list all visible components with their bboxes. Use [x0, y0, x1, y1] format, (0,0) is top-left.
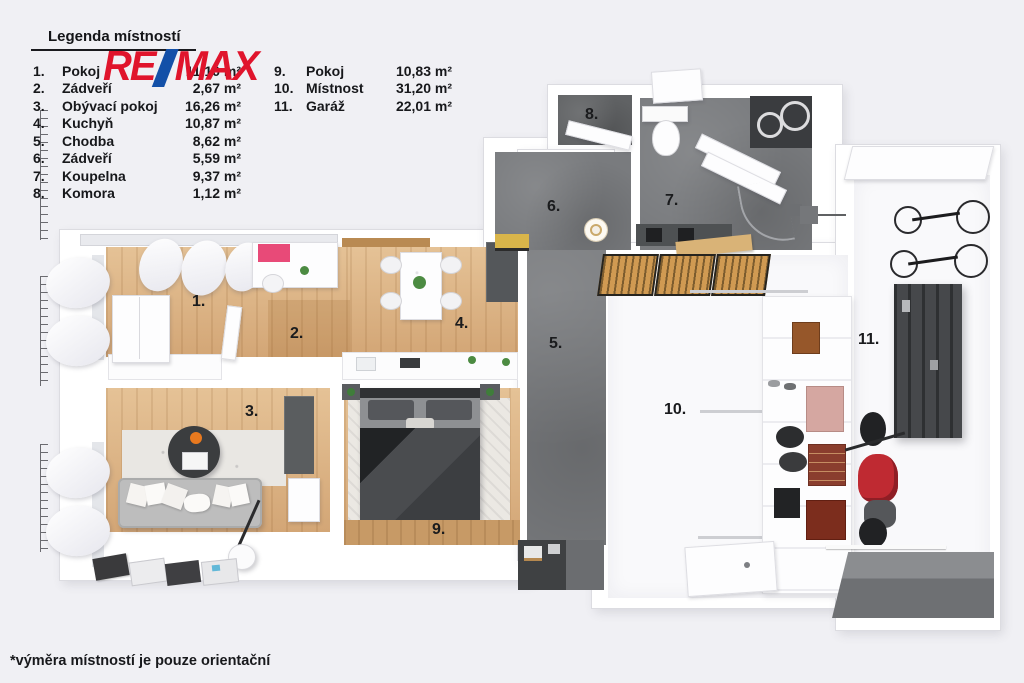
- vent-box: [800, 206, 818, 224]
- wardrobe-divider: [139, 297, 140, 359]
- legend-row: 3.Obývací pokoj16,26 m²: [33, 97, 241, 115]
- bed-pillow: [368, 400, 414, 420]
- tv-cabinet: [284, 396, 314, 474]
- step-books: [524, 546, 542, 558]
- room-label-10: 10.: [664, 401, 686, 419]
- bed: [360, 388, 480, 520]
- garage-ramp: [832, 552, 994, 618]
- vent-line: [818, 214, 846, 216]
- desk-chair: [262, 274, 284, 293]
- legend-row: 4.Kuchyň10,87 m²: [33, 115, 241, 133]
- magazine: [165, 560, 201, 586]
- wardrobe: [112, 295, 170, 363]
- bicycle: [894, 198, 990, 234]
- helmet: [776, 426, 804, 448]
- magazine-accent: [212, 565, 221, 572]
- room-label-8: 8.: [585, 106, 598, 124]
- kitchen-cooktop: [400, 358, 420, 368]
- wall-crate: [597, 254, 659, 296]
- garage-canopy: [844, 146, 994, 180]
- side-cabinet: [288, 478, 320, 522]
- dining-chair: [440, 292, 462, 310]
- step-books: [548, 544, 560, 554]
- table-book: [182, 452, 208, 470]
- bike-wheel: [956, 200, 990, 234]
- trunk-pink: [806, 386, 844, 432]
- sink-basin: [646, 228, 662, 242]
- door-flat: [684, 541, 777, 597]
- sliding-door-wood: [342, 238, 430, 247]
- room-label-4: 4.: [455, 315, 468, 333]
- storage-box-black: [774, 488, 800, 518]
- room-label-3: 3.: [245, 403, 258, 421]
- remax-logo: REMAX: [103, 42, 258, 90]
- room-label-11: 11.: [858, 331, 879, 349]
- table-flower: [190, 432, 202, 444]
- legend-row: 10.Místnost31,20 m²: [274, 80, 452, 98]
- shoes: [768, 380, 780, 387]
- floor-room2-shade: [268, 300, 350, 357]
- entry-canopy: [651, 68, 703, 103]
- dining-chair: [380, 292, 402, 310]
- counter-plant: [502, 358, 510, 366]
- room-label-9: 9.: [432, 521, 445, 539]
- storage-box-brown: [792, 322, 820, 354]
- moto-tank: [858, 454, 898, 502]
- legend-column-2: 9.Pokoj10,83 m² 10.Místnost31,20 m² 11.G…: [274, 62, 452, 115]
- trunk-red: [806, 500, 846, 540]
- footnote: *výměra místností je pouze orientační: [10, 653, 270, 669]
- dryer-drum: [780, 101, 810, 131]
- sofa-pillow: [183, 493, 211, 514]
- shoe-step-side: [566, 540, 604, 590]
- magazine: [201, 558, 239, 586]
- tool-item: [902, 300, 910, 312]
- room-label-7: 7.: [665, 192, 678, 210]
- nightstand-plant: [486, 388, 494, 396]
- kitchen-sink: [356, 357, 376, 371]
- magazine: [129, 558, 168, 587]
- toilet-bowl: [652, 120, 680, 156]
- sofa-pillow: [228, 483, 250, 506]
- room-label-2: 2.: [290, 325, 303, 343]
- room-label-1: 1.: [192, 293, 205, 311]
- bicycle: [890, 242, 988, 278]
- legend-row: 9.Pokoj10,83 m²: [274, 62, 452, 80]
- door-flat-handle: [744, 562, 750, 568]
- motorcycle: [842, 412, 912, 548]
- bed-headboard: [360, 388, 480, 398]
- room-label-5: 5.: [549, 335, 562, 353]
- legend-row: 8.Komora1,12 m²: [33, 185, 241, 203]
- table-plant: [413, 276, 426, 289]
- dining-chair: [380, 256, 402, 274]
- legend-row: 7.Koupelna9,37 m²: [33, 167, 241, 185]
- legend-row: 6.Zádveří5,59 m²: [33, 150, 241, 168]
- bike-wheel: [954, 244, 988, 278]
- hat: [584, 218, 608, 242]
- desk-pink-box: [258, 244, 290, 262]
- fridge: [486, 242, 518, 302]
- logo-re: RE: [103, 42, 155, 89]
- sofa: [118, 478, 262, 528]
- dining-chair: [440, 256, 462, 274]
- shoes: [784, 383, 796, 390]
- legend-row: 11.Garáž22,01 m²: [274, 97, 452, 115]
- entry-bench: [495, 234, 529, 248]
- ramp-pipe: [826, 545, 946, 549]
- legend-row: 5.Chodba8,62 m²: [33, 132, 241, 150]
- bed-pillow: [426, 400, 472, 420]
- counter-plant: [468, 356, 476, 364]
- wall-rail: [690, 290, 808, 293]
- nightstand-plant: [347, 388, 355, 396]
- bed-blanket: [360, 428, 480, 520]
- desk-plant: [300, 266, 309, 275]
- tool-item: [930, 360, 938, 370]
- moto-rear-wheel: [859, 518, 887, 548]
- logo-max: MAX: [175, 42, 258, 89]
- helmet: [779, 452, 807, 472]
- trunk-brown: [808, 444, 846, 486]
- page: { "legend": { "title": "Legenda místnost…: [0, 0, 1024, 683]
- room-label-6: 6.: [547, 198, 560, 216]
